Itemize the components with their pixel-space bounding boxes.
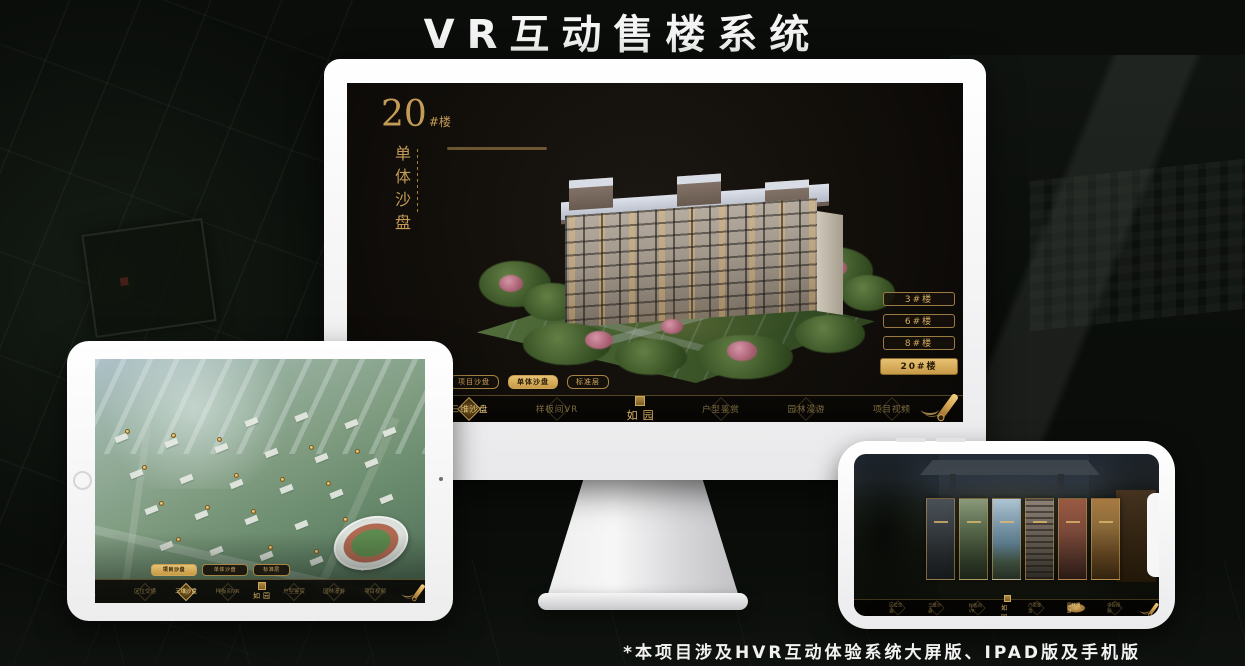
building-number-marker[interactable] — [159, 501, 164, 506]
logo-seal-icon — [635, 396, 645, 406]
aerial-building-block — [144, 505, 158, 515]
ipad-subtab-label: 标准层 — [263, 567, 280, 573]
aerial-building-block — [314, 453, 328, 463]
phone-nav-item[interactable]: 样板间VR — [957, 598, 999, 616]
flower-blob — [499, 275, 523, 292]
building-button-group: 3#楼6#楼8#楼20#楼 — [878, 292, 960, 383]
ipad-mockup: 项目沙盘单体沙盘标准层 区位交通三维沙盘样板间VR如园户型鉴赏园林漫游项目视频 — [67, 341, 453, 621]
ipad-navbar: 区位交通三维沙盘样板间VR如园户型鉴赏园林漫游项目视频 — [95, 579, 425, 603]
building-number-marker[interactable] — [280, 477, 285, 482]
phone-nav-item-label: 园林漫游 — [1067, 602, 1084, 614]
monitor-nav-item[interactable]: 项目视频 — [869, 403, 915, 415]
phone-nav-item-label: 样板间VR — [969, 603, 988, 614]
building-number-marker[interactable] — [125, 429, 130, 434]
poster: VR互动售楼系统 20#楼 单体沙盘 — [0, 0, 1245, 666]
tree-blob — [615, 339, 687, 375]
monitor-subtabs: 项目沙盘单体沙盘标准层 — [449, 375, 609, 389]
scene-card-interior-green[interactable] — [959, 498, 988, 580]
monitor-stand-neck — [547, 479, 739, 597]
building-side-face — [817, 211, 843, 315]
logo-seal-icon — [1004, 595, 1011, 602]
scene-card-interior-warm[interactable] — [1091, 498, 1120, 580]
monitor-subtab[interactable]: 标准层 — [567, 375, 609, 389]
ipad-subtab[interactable]: 标准层 — [253, 564, 290, 576]
phone-logo-text: 如园 — [999, 603, 1017, 616]
phone-nav-item[interactable]: 区位交通 — [878, 597, 917, 616]
ipad-nav-item-label: 园林漫游 — [323, 588, 345, 595]
monitor-nav-item[interactable]: 三维沙盘 — [446, 403, 492, 415]
ipad-nav-item[interactable]: 区位交通 — [125, 586, 165, 597]
phone-nav-item[interactable]: 园林漫游 — [1056, 597, 1095, 616]
monitor-nav-item-label: 样板间VR — [536, 403, 578, 415]
monitor-nav-item[interactable]: 园林漫游 — [783, 403, 829, 415]
monitor-subtab-label: 标准层 — [576, 376, 600, 388]
ipad-subtab[interactable]: 项目沙盘 — [151, 564, 197, 576]
building-number-marker[interactable] — [326, 481, 331, 486]
scroll-menu-icon[interactable] — [95, 584, 97, 603]
scene-card-strip — [926, 498, 1120, 580]
monitor-nav-item[interactable]: 样板间VR — [532, 403, 582, 415]
phone-notch — [1147, 493, 1159, 577]
aerial-building-block — [244, 515, 258, 525]
background-plaque — [81, 218, 216, 338]
scene-card-autumn[interactable] — [1058, 498, 1087, 580]
monitor-nav-item-label: 项目视频 — [873, 403, 911, 415]
phone-screen[interactable]: 区位交通三维沙盘样板间VR如园户型鉴赏园林漫游项目视频 — [854, 454, 1159, 616]
description-line — [447, 147, 547, 150]
ipad-nav-item-label: 三维沙盘 — [175, 588, 197, 595]
ipad-nav-item[interactable]: 项目视频 — [355, 586, 395, 597]
building-number-marker[interactable] — [217, 437, 222, 442]
monitor-stand-base — [538, 593, 748, 610]
monitor-logo-text: 如园 — [622, 407, 659, 423]
ipad-nav-item[interactable]: 户型鉴赏 — [274, 586, 314, 597]
building-number-marker[interactable] — [142, 465, 147, 470]
flower-blob — [585, 331, 613, 349]
ipad-nav-item-label: 户型鉴赏 — [283, 588, 305, 595]
scroll-bar — [1147, 602, 1159, 616]
volume-button[interactable] — [896, 438, 926, 442]
subtitle-english-line — [417, 149, 418, 213]
ipad-logo-text: 如园 — [250, 591, 273, 601]
phone-nav-item-label: 区位交通 — [889, 602, 906, 614]
building-tower — [677, 173, 721, 206]
building-button[interactable]: 3#楼 — [883, 292, 955, 306]
phone-nav-item-label: 项目视频 — [1107, 602, 1124, 614]
building-number-marker[interactable] — [234, 473, 239, 478]
flower-blob — [661, 319, 683, 334]
logo-seal-icon — [258, 582, 266, 590]
monitor-subtab-label: 项目沙盘 — [458, 376, 490, 388]
monitor-subtab[interactable]: 单体沙盘 — [508, 375, 558, 389]
building-button[interactable]: 8#楼 — [883, 336, 955, 350]
ipad-nav-item[interactable]: 三维沙盘 — [166, 586, 206, 597]
flower-blob — [727, 341, 757, 361]
monitor-nav-item-label: 户型鉴赏 — [702, 403, 740, 415]
monitor-nav-item-label: 园林漫游 — [787, 403, 825, 415]
scroll-menu-icon[interactable] — [854, 603, 856, 616]
scene-card-building[interactable] — [1025, 498, 1054, 580]
monitor-nav-item[interactable]: 户型鉴赏 — [698, 403, 744, 415]
aerial-building-block — [329, 489, 343, 499]
building-number-marker[interactable] — [171, 433, 176, 438]
aerial-building-block — [294, 520, 308, 530]
building-subtitle: 单体沙盘 — [389, 145, 413, 237]
monitor-nav-item-label: 三维沙盘 — [450, 403, 488, 415]
scroll-menu-icon[interactable] — [1139, 603, 1157, 616]
ipad-nav-item[interactable]: 园林漫游 — [314, 586, 354, 597]
ipad-nav-item-label: 样板间VR — [216, 588, 240, 595]
volume-button[interactable] — [936, 438, 966, 442]
ipad-nav-item-label: 区位交通 — [134, 588, 156, 595]
phone-nav-item[interactable]: 项目视频 — [1096, 597, 1135, 616]
monitor-subtab-label: 单体沙盘 — [517, 376, 549, 388]
scene-card-entrance[interactable] — [926, 498, 955, 580]
building-button[interactable]: 20#楼 — [880, 358, 958, 375]
ipad-subtab[interactable]: 单体沙盘 — [202, 564, 248, 576]
building-heading: 20#楼 — [381, 97, 451, 133]
monitor-logo[interactable]: 如园 — [622, 396, 659, 423]
building-number-suffix: #楼 — [429, 115, 451, 129]
monitor-subtab[interactable]: 项目沙盘 — [449, 375, 499, 389]
building-number: 20 — [381, 94, 427, 135]
aerial-building-block — [379, 494, 393, 504]
ipad-nav-item[interactable]: 样板间VR — [206, 586, 249, 597]
ipad-nav-item-label: 项目视频 — [364, 588, 386, 595]
ipad-screen[interactable]: 项目沙盘单体沙盘标准层 区位交通三维沙盘样板间VR如园户型鉴赏园林漫游项目视频 — [95, 359, 425, 603]
scene-card-landscape[interactable] — [992, 498, 1021, 580]
page-title: VR互动售楼系统 — [0, 2, 1245, 60]
phone-mockup: 区位交通三维沙盘样板间VR如园户型鉴赏园林漫游项目视频 — [838, 441, 1175, 629]
tree-blob — [795, 315, 865, 353]
background-buildings-right — [1030, 159, 1245, 332]
phone-nav-item-label: 户型鉴赏 — [1028, 602, 1045, 614]
building-number-marker[interactable] — [205, 505, 210, 510]
scroll-bar — [411, 584, 425, 602]
phone-nav-item[interactable]: 三维沙盘 — [917, 597, 956, 616]
ipad-subtabs: 项目沙盘单体沙盘标准层 — [151, 564, 290, 576]
building-number-marker[interactable] — [343, 517, 348, 522]
ipad-logo[interactable]: 如园 — [250, 582, 273, 601]
aerial-building-block — [194, 510, 208, 520]
building-tower — [569, 177, 613, 210]
camera-icon — [439, 477, 443, 481]
building-number-marker[interactable] — [309, 445, 314, 450]
scroll-menu-icon[interactable] — [401, 584, 423, 603]
scroll-menu-icon[interactable] — [919, 394, 955, 422]
ipad-subtab-label: 项目沙盘 — [163, 567, 185, 573]
ipad-subtab-label: 单体沙盘 — [214, 567, 236, 573]
phone-nav-item-label: 三维沙盘 — [928, 602, 945, 614]
home-button[interactable] — [73, 471, 92, 490]
phone-logo[interactable]: 如园 — [999, 595, 1017, 616]
footnote: *本项目涉及HVR互动体验系统大屏版、IPAD版及手机版 — [623, 638, 1141, 663]
phone-navbar: 区位交通三维沙盘样板间VR如园户型鉴赏园林漫游项目视频 — [854, 599, 1159, 616]
building-number-marker[interactable] — [251, 509, 256, 514]
building-3d-model[interactable] — [465, 155, 909, 395]
phone-nav-item[interactable]: 户型鉴赏 — [1017, 597, 1056, 616]
building-button[interactable]: 6#楼 — [883, 314, 955, 328]
building-number-marker[interactable] — [355, 449, 360, 454]
scroll-bar — [936, 393, 959, 421]
